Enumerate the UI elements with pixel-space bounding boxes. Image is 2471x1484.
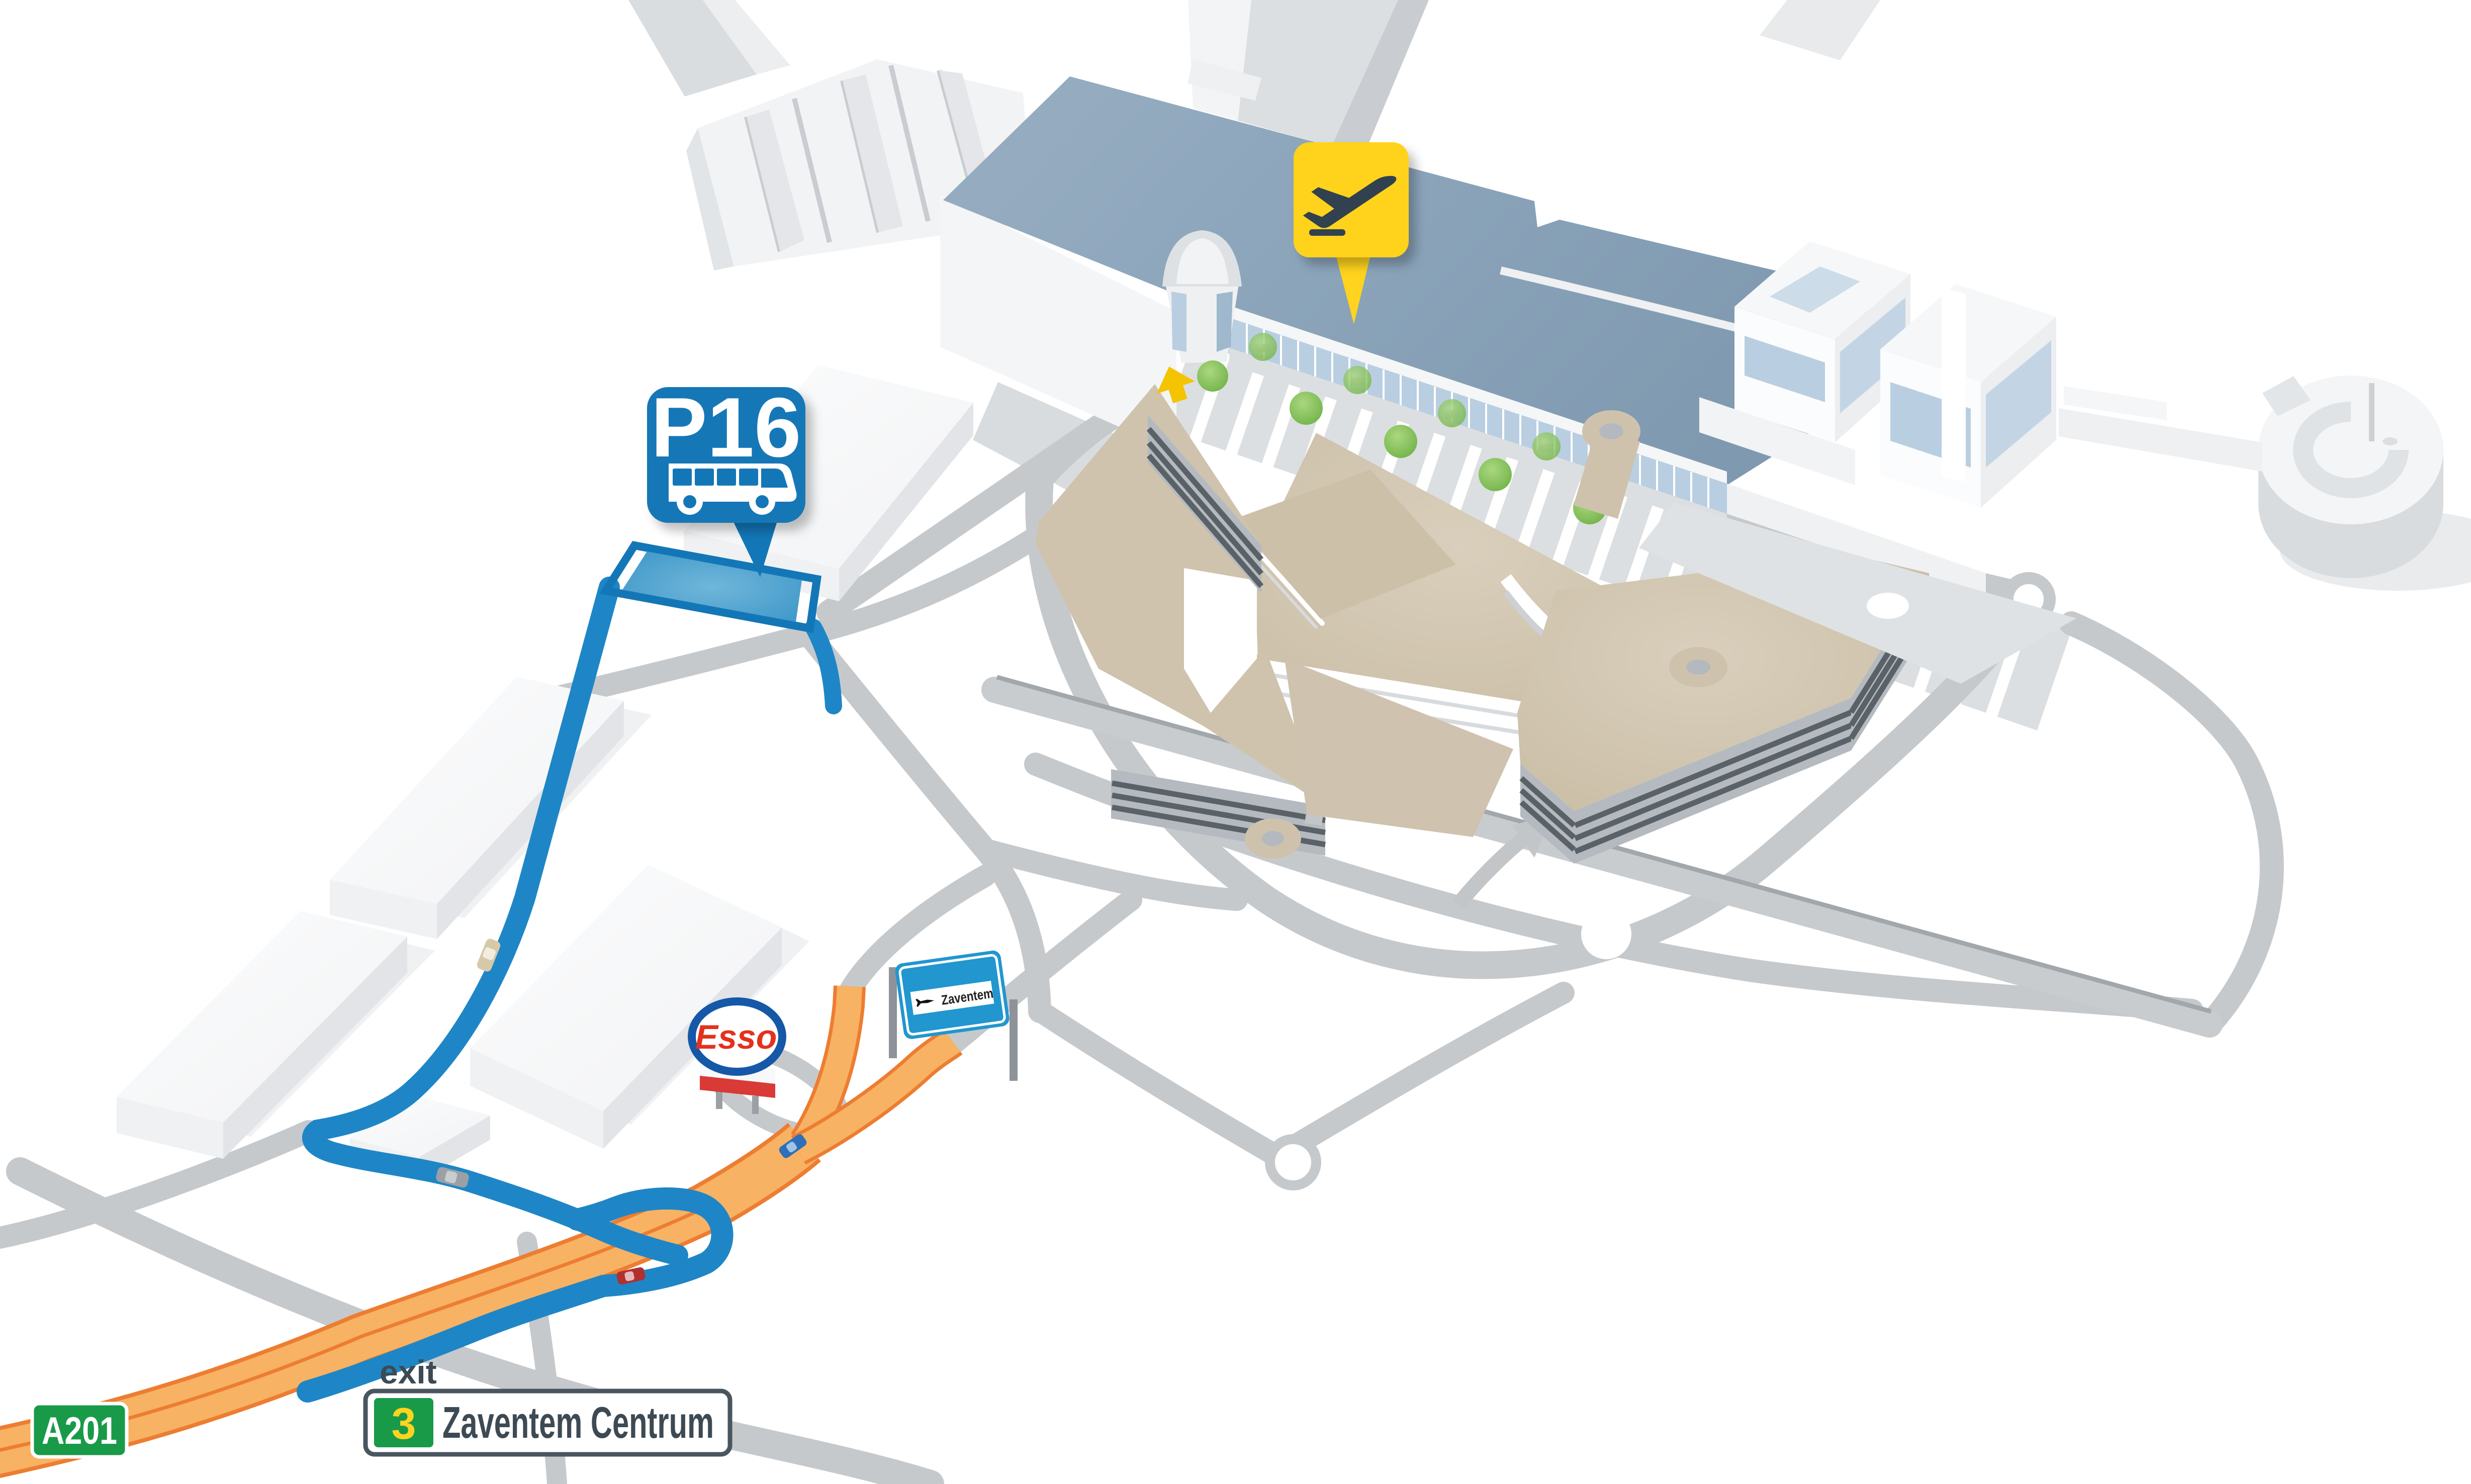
svg-text:Esso: Esso — [695, 1018, 777, 1056]
svg-text:Zaventem Centrum: Zaventem Centrum — [442, 1398, 714, 1447]
svg-text:3: 3 — [392, 1399, 416, 1448]
svg-text:P16: P16 — [651, 380, 801, 475]
svg-text:A201: A201 — [42, 1410, 117, 1452]
svg-text:exit: exit — [380, 1353, 437, 1390]
